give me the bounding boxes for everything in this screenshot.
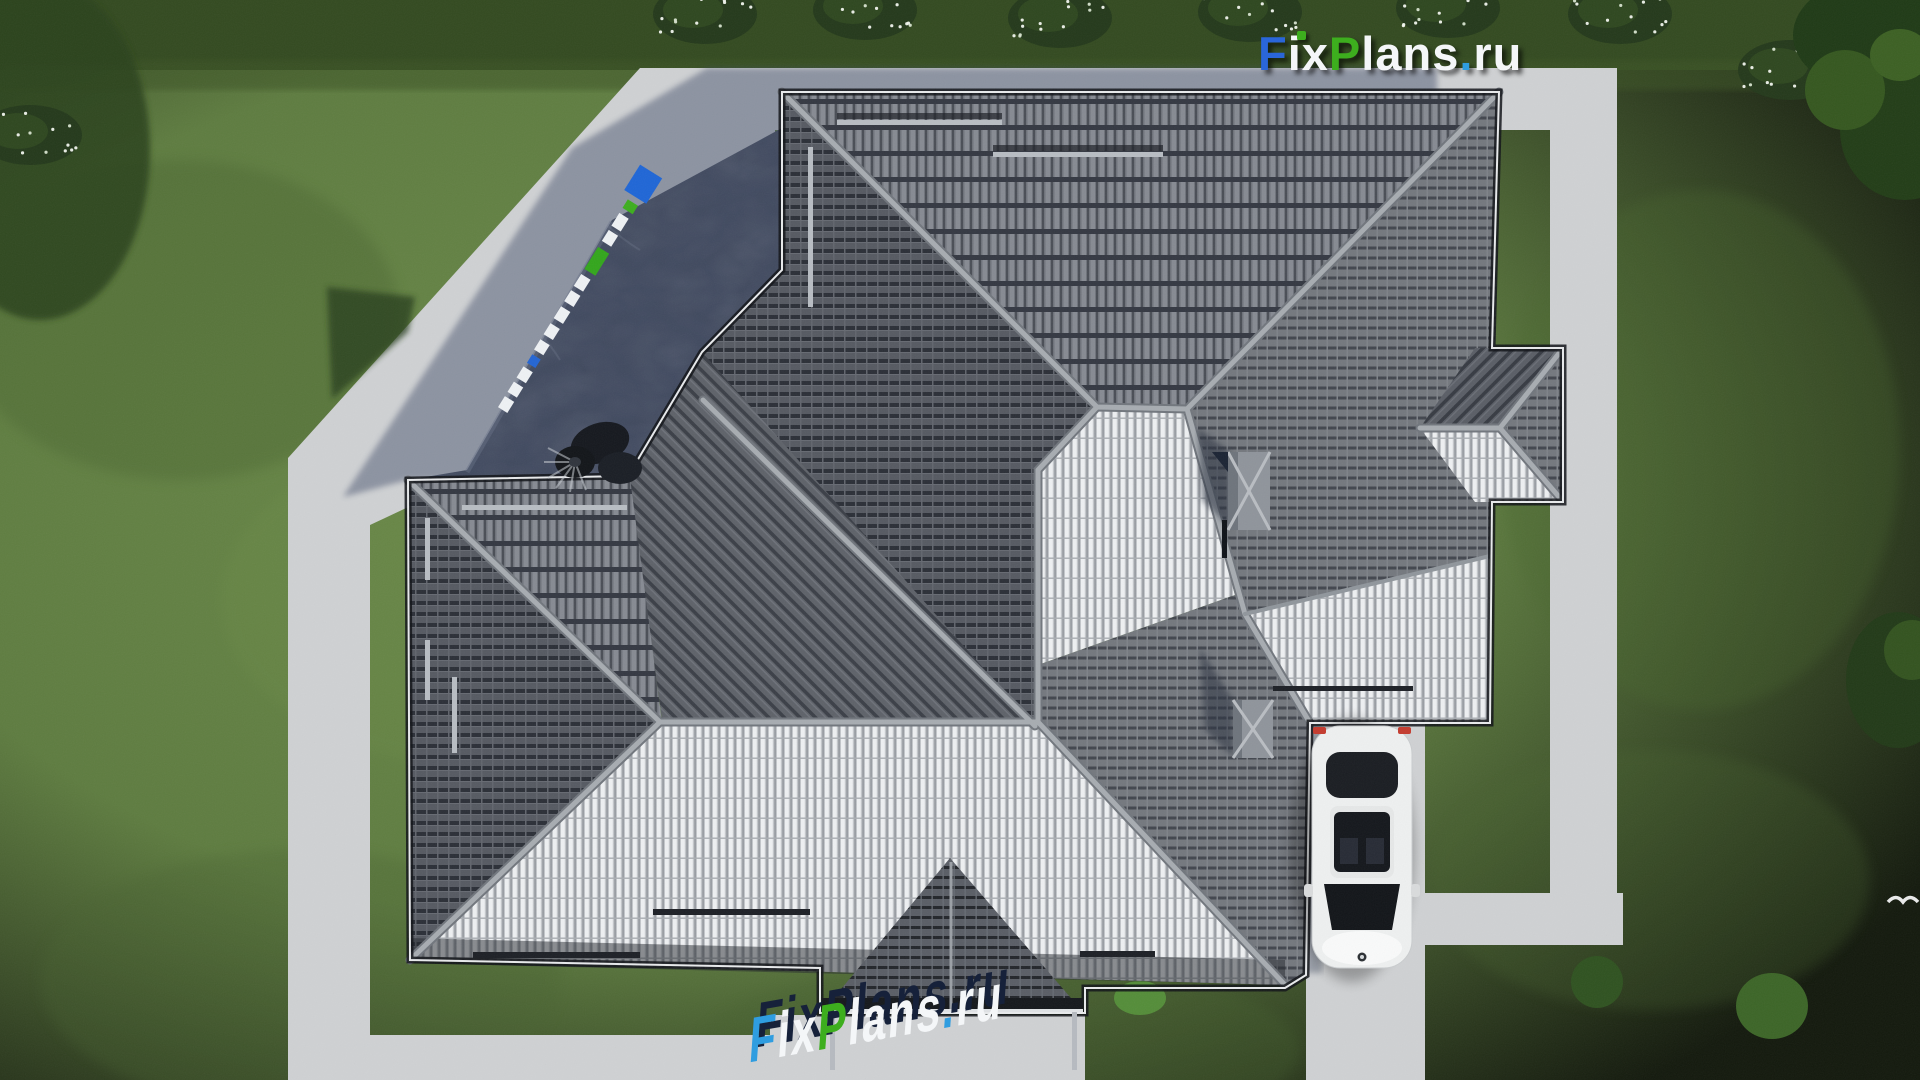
- logo-dot: .: [1459, 27, 1473, 80]
- logo-letters-lans: lans: [1361, 27, 1459, 80]
- render-canvas: FixPlans.ru FixPlans.ru FixPlans.ru: [0, 0, 1920, 1080]
- logo-letter-f: F: [1258, 27, 1288, 80]
- scene-illustration: [0, 0, 1920, 1080]
- logo-i-dot: [1297, 31, 1306, 40]
- logo-letters-ru: ru: [1473, 27, 1522, 80]
- logo-letter-p: P: [1329, 27, 1361, 80]
- film-grain-overlay: [0, 0, 1920, 1080]
